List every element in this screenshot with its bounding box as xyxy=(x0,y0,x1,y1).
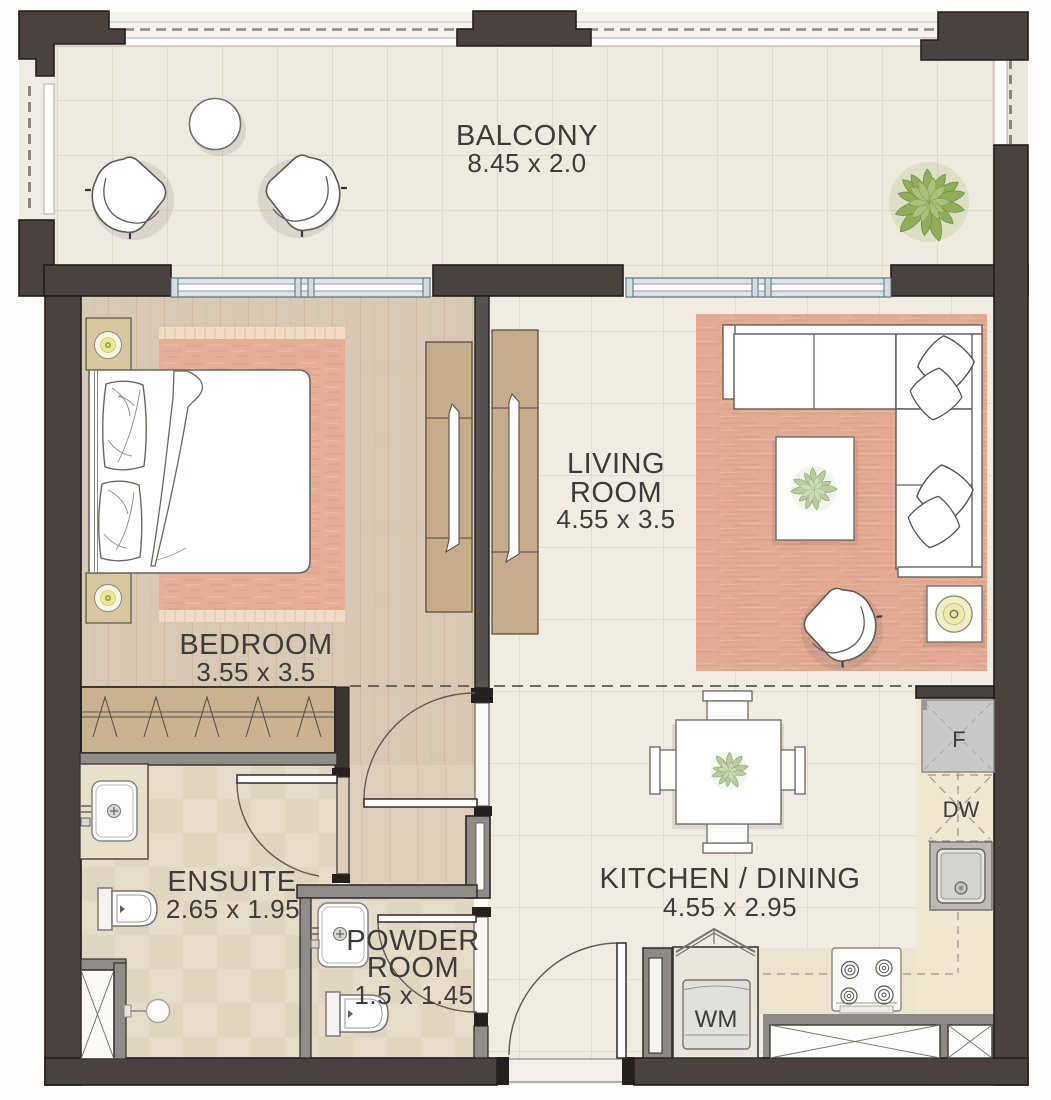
svg-text:4.55 x 3.5: 4.55 x 3.5 xyxy=(556,504,675,534)
svg-text:8.45 x 2.0: 8.45 x 2.0 xyxy=(467,148,586,178)
svg-text:KITCHEN / DINING: KITCHEN / DINING xyxy=(600,863,861,895)
svg-text:LIVING: LIVING xyxy=(567,448,665,480)
svg-text:DW: DW xyxy=(943,797,980,822)
svg-text:WM: WM xyxy=(695,1006,738,1033)
svg-text:3.55 x 3.5: 3.55 x 3.5 xyxy=(196,657,315,687)
svg-text:2.65 x 1.95: 2.65 x 1.95 xyxy=(166,894,300,924)
svg-text:1.5 x 1.45: 1.5 x 1.45 xyxy=(354,980,473,1010)
svg-text:F: F xyxy=(952,727,965,752)
svg-text:4.55 x 2.95: 4.55 x 2.95 xyxy=(663,892,797,922)
